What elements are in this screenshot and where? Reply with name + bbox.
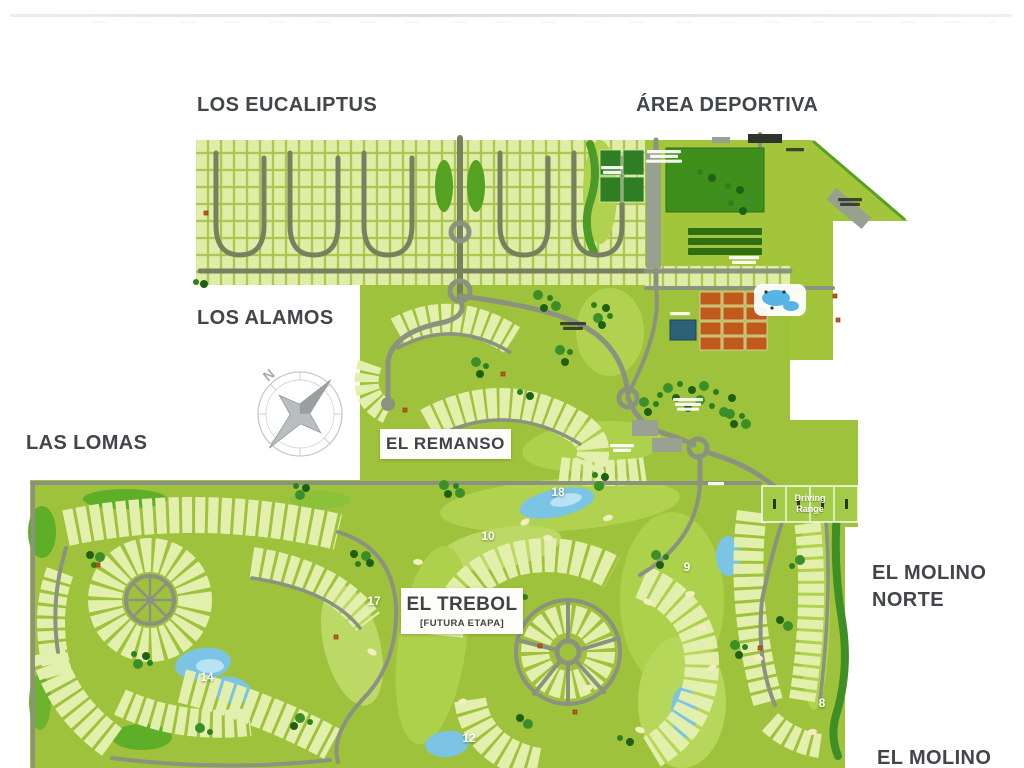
area-label-los-alamos: LOS ALAMOS xyxy=(197,308,334,328)
driving-range-label: Driving Range xyxy=(762,486,858,522)
golf-hole-17: 17 xyxy=(367,594,380,608)
parking-lot xyxy=(646,150,661,268)
el-molino-norte-line1: EL MOLINO xyxy=(872,560,986,587)
golf-hole-10: 10 xyxy=(481,529,494,543)
driving-range-line1: Driving xyxy=(794,493,825,504)
bleachers xyxy=(688,228,762,255)
el-trebol-text: EL TREBOL xyxy=(407,594,518,616)
gatehouse xyxy=(748,134,782,143)
boxed-label-el-trebol: EL TREBOL [FUTURA ETAPA] xyxy=(401,588,523,634)
driving-range-line2: Range xyxy=(796,504,824,515)
el-trebol-subtext: [FUTURA ETAPA] xyxy=(420,618,504,629)
area-label-area-deportiva: ÁREA DEPORTIVA xyxy=(636,95,818,115)
golf-hole-18: 18 xyxy=(551,485,564,499)
area-label-las-lomas: LAS LOMAS xyxy=(26,433,147,453)
el-molino-norte-line2: NORTE xyxy=(872,587,986,614)
el-remanso-text: EL REMANSO xyxy=(386,434,505,454)
golf-hole-14: 14 xyxy=(200,670,213,684)
compass-north-letter: N xyxy=(260,366,278,385)
clubhouse-building xyxy=(670,320,696,340)
pool-area xyxy=(754,284,806,316)
golf-hole-9: 9 xyxy=(684,560,691,574)
community-master-plan: N LOS EUCALIPTUS ÁREA DEPORTIVA LOS ALAM… xyxy=(0,0,1024,768)
golf-hole-8: 8 xyxy=(819,696,826,710)
golf-hole-12: 12 xyxy=(462,731,475,745)
boxed-label-el-remanso: EL REMANSO xyxy=(380,429,511,459)
area-label-los-eucaliptus: LOS EUCALIPTUS xyxy=(197,95,377,115)
area-label-el-molino: EL MOLINO xyxy=(877,748,991,768)
area-label-el-molino-norte: EL MOLINO NORTE xyxy=(872,560,986,614)
compass-rose: N xyxy=(248,361,351,467)
map-graphic: N xyxy=(0,0,1024,768)
